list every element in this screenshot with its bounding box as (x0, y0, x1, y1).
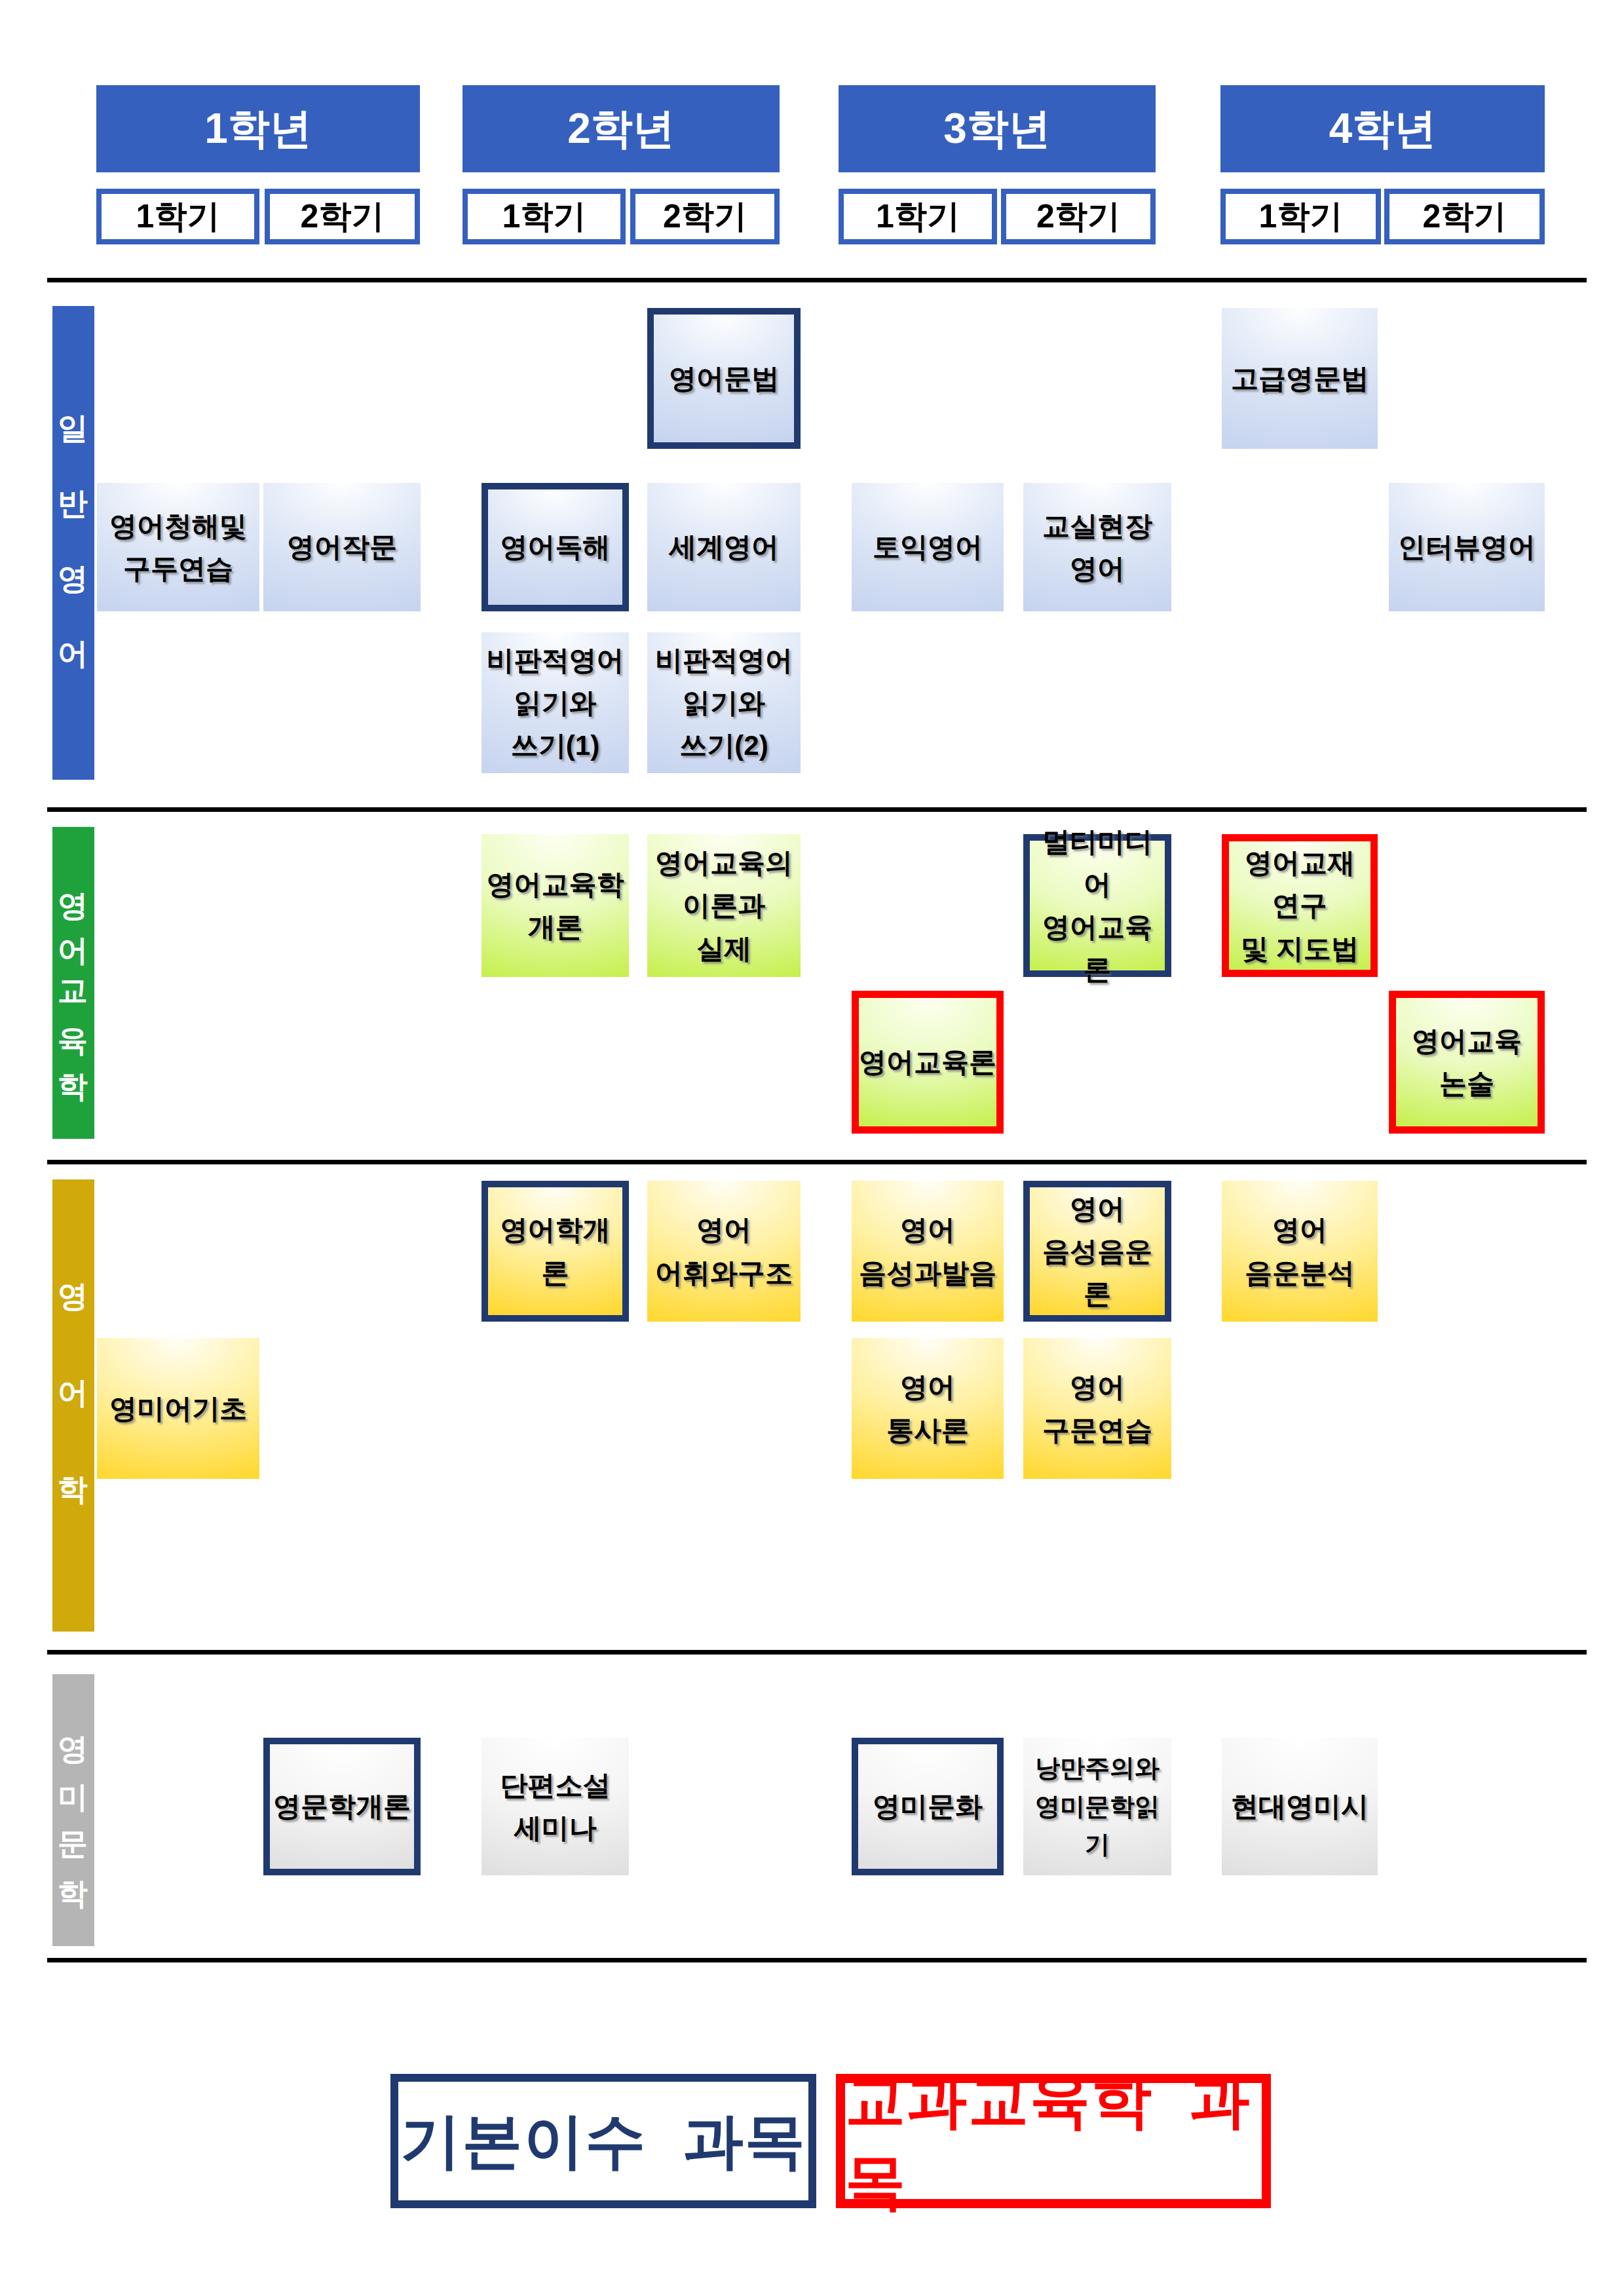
semester-box-1-1: 1학기 (96, 189, 259, 244)
course-box: 교실현장 영어 (1023, 483, 1171, 611)
section-divider-1 (47, 278, 1587, 282)
semester-box-3-1: 1학기 (839, 189, 997, 244)
course-box: 영어 음성음운론 (1023, 1181, 1171, 1322)
course-box: 영어교육의 이론과 실제 (647, 834, 801, 977)
course-box: 영어문법 (647, 308, 801, 449)
semester-box-4-1: 1학기 (1220, 189, 1381, 244)
course-box: 비판적영어 읽기와 쓰기(1) (482, 632, 629, 773)
course-box: 영문학개론 (263, 1738, 421, 1875)
legend-subject-pedagogy-box: 교과교육학 과목 (836, 2074, 1271, 2208)
course-box: 영미어기초 (97, 1338, 259, 1479)
course-box: 영어교육 논술 (1389, 991, 1545, 1134)
course-box: 멀티미디어 영어교육론 (1023, 834, 1171, 977)
course-box: 영어 어휘와구조 (647, 1181, 801, 1322)
course-box: 인터뷰영어 (1389, 483, 1545, 611)
course-box: 세계영어 (647, 483, 801, 611)
legend-basic-required-box: 기본이수 과목 (390, 2074, 816, 2208)
category-bar-general: 일반영어 (52, 306, 94, 780)
course-box: 영어교재 연구 및 지도법 (1222, 834, 1378, 977)
course-box: 토익영어 (852, 483, 1004, 611)
course-box: 영어교육학 개론 (482, 834, 629, 977)
course-box: 영미문화 (852, 1738, 1004, 1875)
course-box: 영어 음성과발음 (852, 1181, 1004, 1322)
course-box: 단편소설 세미나 (482, 1738, 629, 1875)
year-header-3: 3학년 (839, 85, 1156, 172)
section-divider-2 (47, 807, 1587, 812)
category-bar-linguistics: 영어학 (52, 1179, 94, 1632)
course-box: 영어 음운분석 (1222, 1181, 1378, 1322)
semester-box-1-2: 2학기 (265, 189, 420, 244)
course-box: 현대영미시 (1222, 1738, 1378, 1875)
curriculum-map: 1학년2학년3학년4학년1학기2학기1학기2학기1학기2학기1학기2학기일반영어… (0, 0, 1624, 2296)
section-divider-3 (47, 1160, 1587, 1164)
semester-box-4-2: 2학기 (1384, 189, 1545, 244)
course-box: 영어교육론 (852, 991, 1004, 1134)
course-box: 고급영문법 (1222, 308, 1378, 449)
course-box: 영어 통사론 (852, 1338, 1004, 1479)
course-box: 낭만주의와 영미문학읽기 (1023, 1738, 1171, 1875)
section-divider-4 (47, 1650, 1587, 1655)
course-box: 영어청해및 구두연습 (97, 483, 259, 611)
year-header-4: 4학년 (1220, 85, 1545, 172)
year-header-2: 2학년 (463, 85, 780, 172)
section-divider-5 (47, 1958, 1587, 1962)
semester-box-2-2: 2학기 (630, 189, 780, 244)
course-box: 영어독해 (482, 483, 629, 611)
category-bar-literature: 영미문학 (52, 1674, 94, 1946)
year-header-1: 1학년 (96, 85, 420, 172)
course-box: 비판적영어 읽기와 쓰기(2) (647, 632, 801, 773)
course-box: 영어 구문연습 (1023, 1338, 1171, 1479)
course-box: 영어작문 (263, 483, 421, 611)
semester-box-2-1: 1학기 (463, 189, 626, 244)
category-bar-education: 영어교육학 (52, 827, 94, 1139)
semester-box-3-2: 2학기 (1001, 189, 1156, 244)
course-box: 영어학개론 (482, 1181, 629, 1322)
